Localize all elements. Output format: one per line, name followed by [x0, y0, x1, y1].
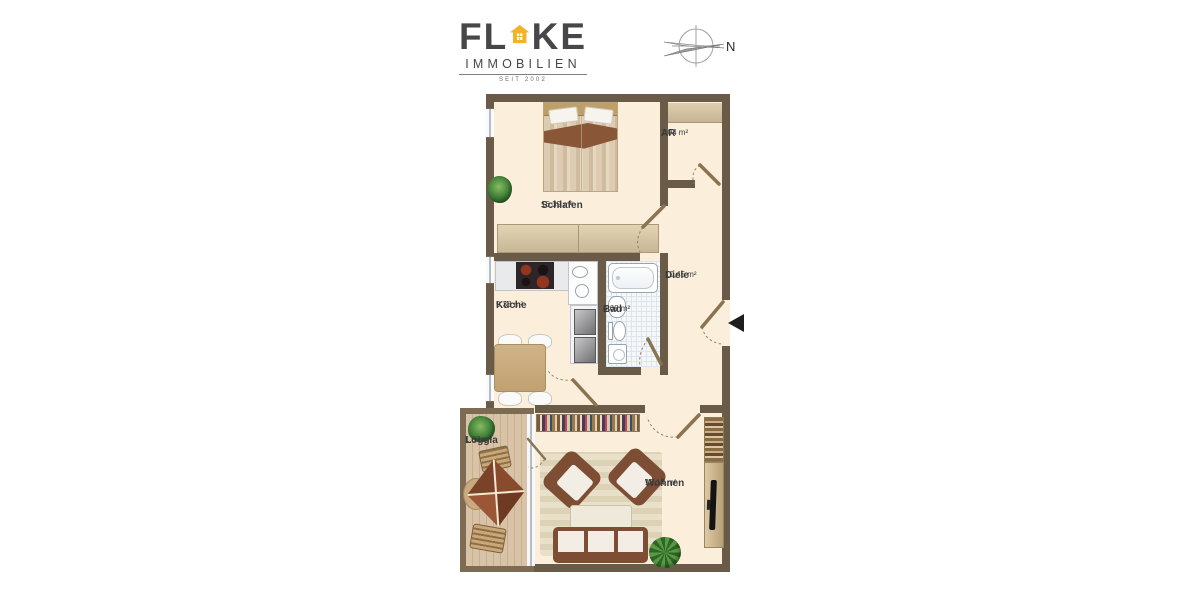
floor-plan: Schlafen 16,39 m² AR 2,04 m² Diele 10,45… — [458, 88, 758, 580]
room-area: 19,14 m² — [645, 478, 677, 488]
double-bed — [543, 102, 618, 192]
brand-since: SEIT 2002 — [459, 77, 587, 83]
brand-logo: FL KE IMMOBILIEN SEIT 2002 — [459, 17, 587, 83]
toilet-bowl — [613, 321, 626, 341]
window-icon — [486, 108, 494, 138]
window-icon — [486, 374, 494, 402]
entrance-arrow-icon — [728, 314, 744, 332]
dining-chair — [498, 391, 522, 406]
brand-text-left: FL — [459, 21, 508, 52]
stove-icon — [516, 262, 554, 289]
room-area: 2,04 m² — [661, 128, 688, 138]
compass-north-label: N — [726, 39, 735, 54]
sofa — [553, 527, 648, 563]
brand-wordmark: FL KE — [459, 17, 587, 52]
page: FL KE IMMOBILIEN SEIT 2002 N — [0, 0, 1200, 600]
door-abstellraum — [684, 156, 724, 192]
pillow — [548, 106, 579, 124]
bookshelf — [536, 414, 640, 432]
room-area: 4,68 m² — [603, 304, 630, 314]
bathtub-icon — [608, 263, 658, 293]
pillow — [583, 106, 614, 124]
wall — [494, 253, 640, 261]
room-area: 1,69 m² — [465, 435, 492, 445]
door-wohnen — [638, 408, 704, 446]
dining-table — [494, 344, 546, 392]
kitchen-sink-icon — [568, 261, 598, 305]
room-area: 16,39 m² — [541, 200, 573, 210]
storage-shelf — [668, 103, 722, 123]
room-area: 9,38 m² — [496, 300, 523, 310]
window-icon — [486, 256, 494, 284]
plant-icon — [649, 537, 681, 568]
door-entrance — [694, 294, 730, 350]
brand-text-right: KE — [532, 21, 587, 52]
wall — [660, 102, 668, 206]
bed-seam — [581, 116, 582, 191]
side-shelf — [704, 417, 724, 462]
door-bad — [636, 330, 668, 372]
washing-machine-icon — [608, 344, 627, 364]
compass-rose-icon: N — [658, 12, 742, 80]
brand-divider — [459, 74, 587, 75]
toilet-icon — [608, 320, 627, 342]
door-kueche — [540, 356, 602, 410]
door-schlafen — [630, 200, 674, 258]
plant-icon — [488, 176, 512, 203]
door-loggia — [524, 434, 558, 474]
room-area: 10,45 m² — [665, 270, 697, 280]
brand-subtitle: IMMOBILIEN — [459, 57, 587, 71]
house-icon — [510, 17, 529, 51]
